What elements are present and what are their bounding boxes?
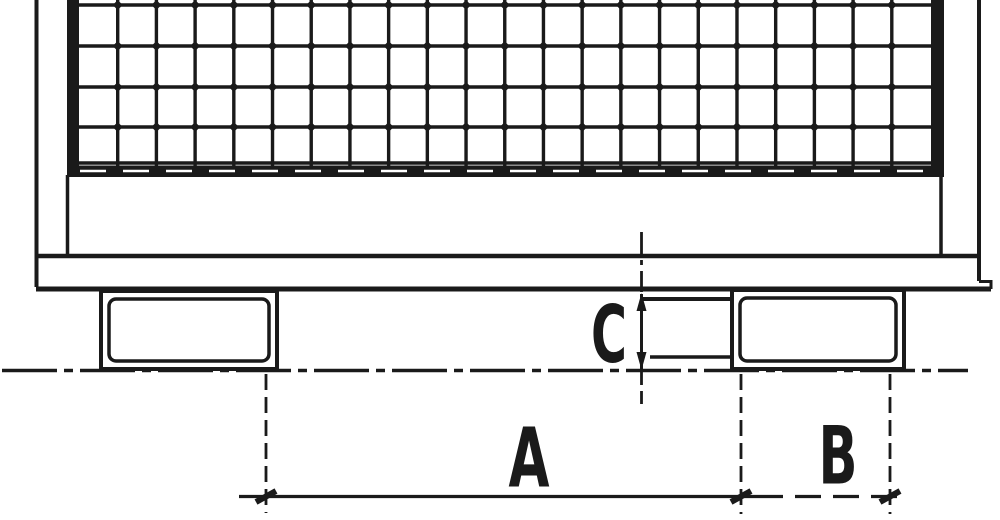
mesh-left-post	[67, 0, 79, 177]
dim-b-label: B	[819, 410, 858, 503]
drawing-canvas: C A B	[0, 0, 1000, 520]
pallet-cage-technical-drawing: C A B	[0, 0, 1000, 520]
dim-a-label: A	[509, 412, 550, 507]
dim-c-label: C	[591, 289, 627, 381]
mesh-right-post	[931, 0, 944, 177]
